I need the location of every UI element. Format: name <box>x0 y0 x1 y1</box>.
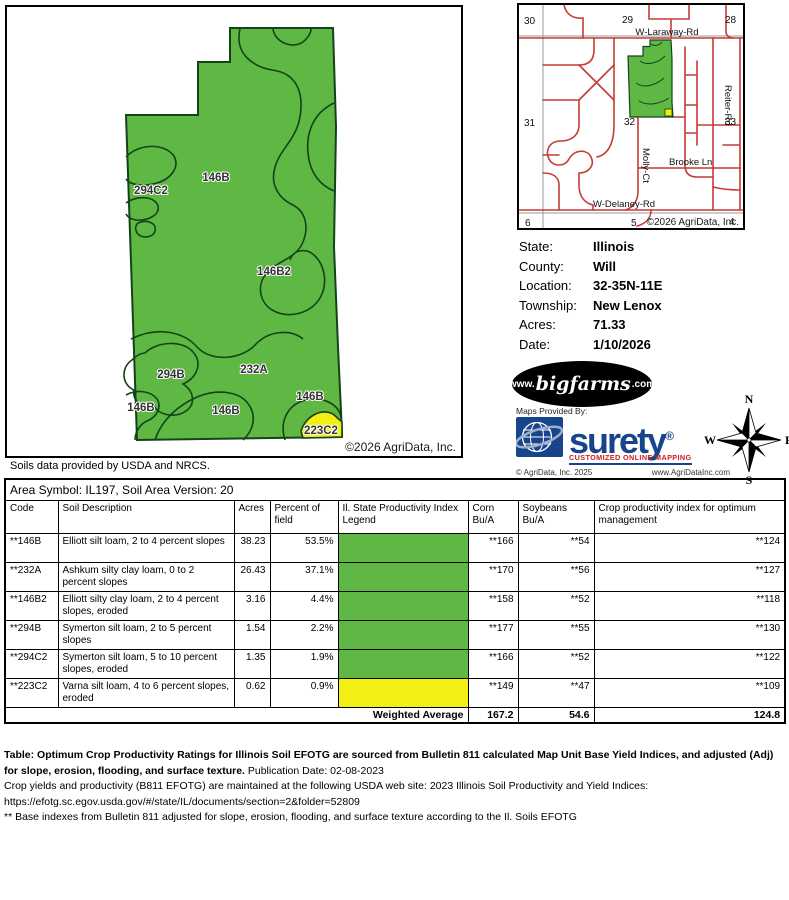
info-row-county: County:Will <box>519 257 662 277</box>
locator-copyright: ©2026 AgriData, Inc. <box>647 217 739 228</box>
road-label-brooke: Brooke Ln <box>669 157 712 168</box>
cell-corn: **177 <box>468 621 518 650</box>
header-soybeans: Soybeans Bu/A <box>518 501 594 534</box>
cell-legend-swatch <box>338 563 468 592</box>
map-copyright: ©2026 AgriData, Inc. <box>345 440 456 454</box>
table-row: **294C2 Symerton silt loam, 5 to 10 perc… <box>5 650 785 679</box>
cell-acres: 3.16 <box>234 592 270 621</box>
footer-maintained-note: Crop yields and productivity (B811 EFOTG… <box>4 779 787 795</box>
info-value: 1/10/2026 <box>593 337 651 352</box>
field-info-panel: State:Illinois County:Will Location:32-3… <box>519 237 662 354</box>
footer-url: https://efotg.sc.egov.usda.gov/#/state/I… <box>4 795 787 811</box>
section-number: 31 <box>524 118 536 129</box>
agridata-copyright: © AgriData, Inc. 2025 <box>516 468 592 477</box>
locator-map: 30 29 28 31 32 33 6 5 4 W-Laraway-Rd Rei… <box>517 3 745 230</box>
soil-label: 294C2 <box>134 185 168 197</box>
cell-corn: **170 <box>468 563 518 592</box>
cell-soybeans: **55 <box>518 621 594 650</box>
cell-description: Elliott silt loam, 2 to 4 percent slopes <box>58 534 234 563</box>
road-label-molly: Molly-Ct <box>640 148 651 183</box>
cell-corn: **166 <box>468 650 518 679</box>
locator-map-canvas: 30 29 28 31 32 33 6 5 4 W-Laraway-Rd Rei… <box>519 5 743 228</box>
cell-soybeans: **54 <box>518 534 594 563</box>
footer-publication-date: Publication Date: 02-08-2023 <box>245 765 384 777</box>
soil-label: 232A <box>240 364 268 376</box>
bigfarms-logo: www.bigfarms.com <box>512 361 652 407</box>
info-value: 71.33 <box>593 317 626 332</box>
area-symbol-row: Area Symbol: IL197, Soil Area Version: 2… <box>5 479 785 501</box>
cell-crop-index: **109 <box>594 679 785 708</box>
cell-corn: **149 <box>468 679 518 708</box>
section-number: 6 <box>525 218 531 228</box>
cell-percent: 0.9% <box>270 679 338 708</box>
info-row-location: Location:32-35N-11E <box>519 276 662 296</box>
footer-notes: Table: Optimum Crop Productivity Ratings… <box>4 748 787 826</box>
road <box>713 125 740 190</box>
info-label: State: <box>519 237 593 257</box>
compass-north-label: N <box>745 392 754 406</box>
cell-soybeans: **47 <box>518 679 594 708</box>
road <box>579 65 614 100</box>
weighted-average-soybeans: 54.6 <box>518 708 594 724</box>
bigfarms-suffix: .com <box>632 379 655 390</box>
soil-label: 223C2 <box>304 425 338 437</box>
cell-code: **294B <box>5 621 58 650</box>
weighted-average-label: Weighted Average <box>5 708 468 724</box>
info-label: County: <box>519 257 593 277</box>
info-label: Date: <box>519 335 593 355</box>
cell-code: **146B2 <box>5 592 58 621</box>
weighted-average-corn: 167.2 <box>468 708 518 724</box>
info-row-acres: Acres:71.33 <box>519 315 662 335</box>
soil-report-page: { "main_map": { "copyright": "©2026 Agri… <box>0 0 789 900</box>
road <box>673 47 713 165</box>
header-code: Code <box>5 501 58 534</box>
footer-source-note: Table: Optimum Crop Productivity Ratings… <box>4 748 787 779</box>
bigfarms-name: bigfarms <box>536 373 631 395</box>
cell-acres: 1.35 <box>234 650 270 679</box>
soil-label: 146B <box>296 391 324 403</box>
weighted-average-row: Weighted Average 167.2 54.6 124.8 <box>5 708 785 724</box>
info-row-state: State:Illinois <box>519 237 662 257</box>
cell-acres: 38.23 <box>234 534 270 563</box>
locator-field <box>628 40 673 117</box>
surety-globe-icon <box>516 417 566 459</box>
section-number: 29 <box>622 15 634 26</box>
info-value: 32-35N-11E <box>593 278 662 293</box>
cell-soybeans: **52 <box>518 592 594 621</box>
cell-code: **223C2 <box>5 679 58 708</box>
registered-mark: ® <box>665 429 674 443</box>
surety-copyright-row: © AgriData, Inc. 2025 www.AgriDataInc.co… <box>516 468 730 477</box>
cell-crop-index: **124 <box>594 534 785 563</box>
cell-description: Varna silt loam, 4 to 6 percent slopes, … <box>58 679 234 708</box>
info-row-date: Date:1/10/2026 <box>519 335 662 355</box>
section-number: 28 <box>725 15 737 26</box>
cell-description: Ashkum silty clay loam, 0 to 2 percent s… <box>58 563 234 592</box>
cell-corn: **166 <box>468 534 518 563</box>
cell-legend-swatch <box>338 650 468 679</box>
soil-table-body: Area Symbol: IL197, Soil Area Version: 2… <box>5 479 785 723</box>
cell-percent: 2.2% <box>270 621 338 650</box>
cell-percent: 4.4% <box>270 592 338 621</box>
cell-legend-swatch <box>338 679 468 708</box>
main-soil-map: 294C2 146B 146B2 294B 232A 146B 146B 146… <box>5 5 463 458</box>
cell-description: Symerton silt loam, 2 to 5 percent slope… <box>58 621 234 650</box>
soil-label: 146B2 <box>257 266 291 278</box>
compass-center <box>747 438 751 442</box>
info-value: Will <box>593 259 616 274</box>
table-row: **232A Ashkum silty clay loam, 0 to 2 pe… <box>5 563 785 592</box>
table-row: **146B2 Elliott silty clay loam, 2 to 4 … <box>5 592 785 621</box>
cell-soybeans: **56 <box>518 563 594 592</box>
info-label: Acres: <box>519 315 593 335</box>
compass-rose-icon: N S W E <box>703 390 789 486</box>
cell-description: Symerton silt loam, 5 to 10 percent slop… <box>58 650 234 679</box>
maps-provided-by-label: Maps Provided By: <box>516 406 587 416</box>
road <box>543 38 594 65</box>
cell-crop-index: **122 <box>594 650 785 679</box>
cell-description: Elliott silty clay loam, 2 to 4 percent … <box>58 592 234 621</box>
section-number: 32 <box>624 117 636 128</box>
soil-productivity-table: Area Symbol: IL197, Soil Area Version: 2… <box>4 478 786 724</box>
road-label-reiter: Reiter-Rd <box>722 85 733 126</box>
header-productivity-legend: Il. State Productivity Index Legend <box>338 501 468 534</box>
cell-percent: 1.9% <box>270 650 338 679</box>
road <box>564 5 583 38</box>
road <box>626 118 638 210</box>
cell-soybeans: **52 <box>518 650 594 679</box>
section-numbers: 30 29 28 31 32 33 6 5 4 <box>524 15 737 228</box>
surety-tagline: CUSTOMIZED ONLINE MAPPING <box>569 453 692 465</box>
info-label: Township: <box>519 296 593 316</box>
table-row: **146B Elliott silt loam, 2 to 4 percent… <box>5 534 785 563</box>
compass-east-label: E <box>785 433 789 447</box>
soil-label: 294B <box>157 369 185 381</box>
area-symbol-cell: Area Symbol: IL197, Soil Area Version: 2… <box>5 479 785 501</box>
weighted-average-crop-index: 124.8 <box>594 708 785 724</box>
footer-base-index-note: ** Base indexes from Bulletin 811 adjust… <box>4 810 787 826</box>
cell-acres: 26.43 <box>234 563 270 592</box>
soil-label: 146B <box>212 405 240 417</box>
cell-percent: 53.5% <box>270 534 338 563</box>
road-label-delaney: W-Delaney-Rd <box>593 199 655 210</box>
cell-crop-index: **118 <box>594 592 785 621</box>
soil-label: 146B <box>202 172 230 184</box>
soil-table: Area Symbol: IL197, Soil Area Version: 2… <box>4 478 786 724</box>
header-corn: Corn Bu/A <box>468 501 518 534</box>
info-value: Illinois <box>593 239 634 254</box>
cell-legend-swatch <box>338 534 468 563</box>
header-acres: Acres <box>234 501 270 534</box>
info-row-township: Township:New Lenox <box>519 296 662 316</box>
cell-crop-index: **127 <box>594 563 785 592</box>
header-soil-description: Soil Description <box>58 501 234 534</box>
main-soil-map-canvas: 294C2 146B 146B2 294B 232A 146B 146B 146… <box>7 7 461 456</box>
cell-legend-swatch <box>338 621 468 650</box>
header-percent-of-field: Percent of field <box>270 501 338 534</box>
section-number: 30 <box>524 16 536 27</box>
compass-west-label: W <box>704 433 716 447</box>
cell-corn: **158 <box>468 592 518 621</box>
cell-crop-index: **130 <box>594 621 785 650</box>
cell-code: **232A <box>5 563 58 592</box>
cell-acres: 1.54 <box>234 621 270 650</box>
cell-legend-swatch <box>338 592 468 621</box>
table-row: **223C2 Varna silt loam, 4 to 6 percent … <box>5 679 785 708</box>
road <box>543 155 559 210</box>
cell-acres: 0.62 <box>234 679 270 708</box>
info-value: New Lenox <box>593 298 662 313</box>
section-number: 5 <box>631 218 637 228</box>
cell-percent: 37.1% <box>270 563 338 592</box>
cell-code: **146B <box>5 534 58 563</box>
info-label: Location: <box>519 276 593 296</box>
soils-data-note: Soils data provided by USDA and NRCS. <box>10 460 210 472</box>
header-crop-index: Crop productivity index for optimum mana… <box>594 501 785 534</box>
road-label-laraway: W-Laraway-Rd <box>635 27 698 38</box>
cell-code: **294C2 <box>5 650 58 679</box>
table-header-row: Code Soil Description Acres Percent of f… <box>5 501 785 534</box>
bigfarms-prefix: www. <box>509 379 535 390</box>
locator-yellow-area <box>665 109 672 116</box>
soil-label: 146B <box>127 402 155 414</box>
footer-source-bold: Table: Optimum Crop Productivity Ratings… <box>4 749 773 777</box>
compass-rose: N S W E <box>703 390 789 491</box>
table-row: **294B Symerton silt loam, 2 to 5 percen… <box>5 621 785 650</box>
